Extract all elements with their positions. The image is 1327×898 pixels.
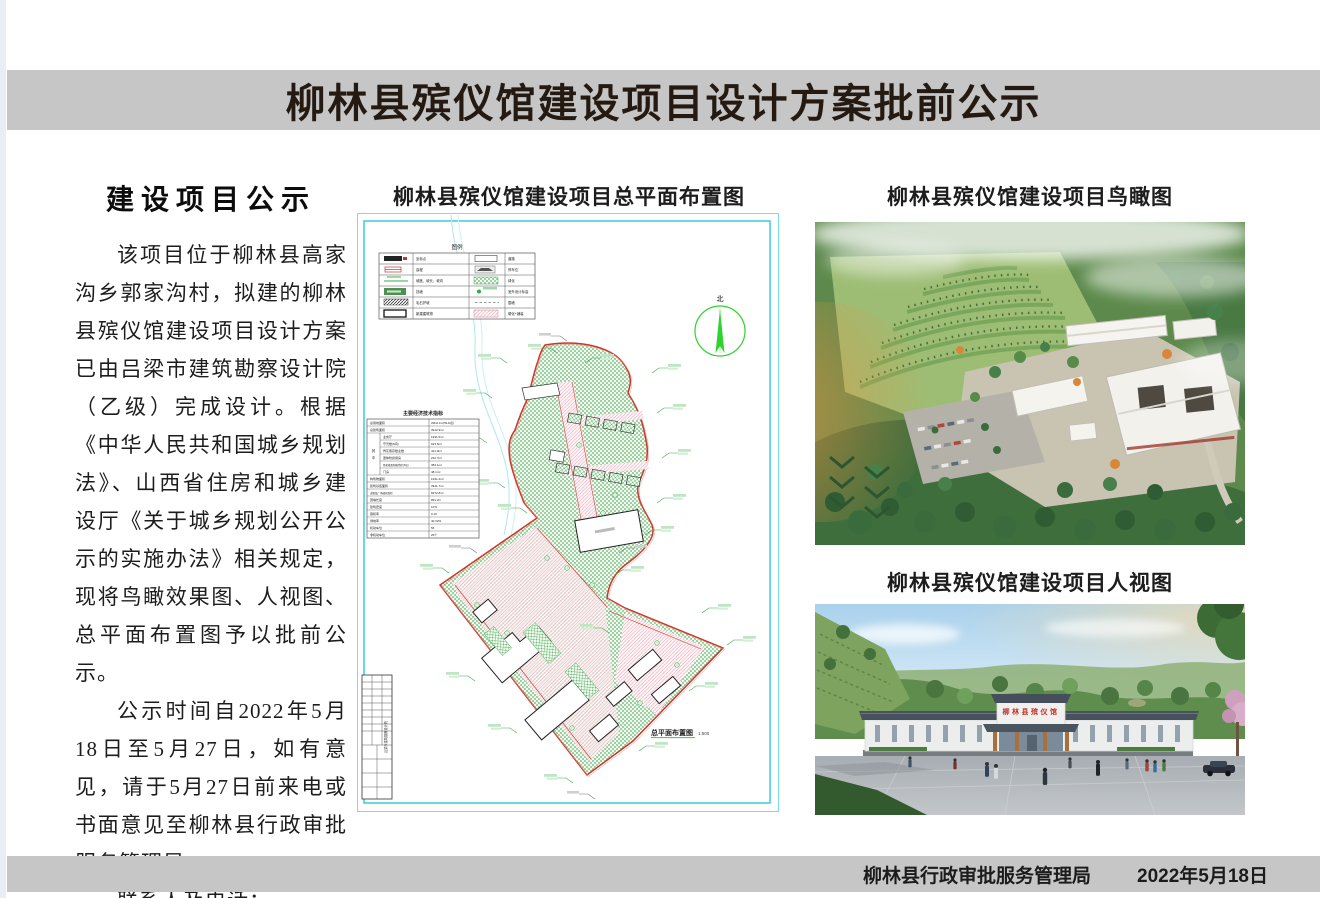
svg-text:新建建筑物: 新建建筑物 [416,311,434,316]
svg-text:623.6m²: 623.6m² [431,442,442,446]
svg-text:232.7m²: 232.7m² [431,456,442,460]
bottom-banner: 柳林县行政审批服务管理局 2022年5月18日 [7,856,1320,892]
svg-text:高程: 高程 [416,267,423,272]
page-title: 柳林县殡仪馆建设项目设计方案批前公示 [286,71,1042,129]
svg-text:1941.2m²: 1941.2m² [431,477,444,481]
svg-text:围墙长度: 围墙长度 [370,497,382,502]
svg-text:门房: 门房 [383,469,389,474]
svg-text:构筑物面积: 构筑物面积 [370,476,385,481]
svg-text:绿地率: 绿地率 [370,518,379,523]
svg-text:建筑基底面积: 建筑基底面积 [370,483,388,488]
site-plan-drawing: 图例 [357,213,779,812]
svg-text:56: 56 [431,526,435,530]
svg-text:8272.8m²: 8272.8m² [431,491,444,495]
svg-text:非机动车位: 非机动车位 [370,532,385,537]
page-edge-strip [0,0,6,898]
svg-text:总建筑面积: 总建筑面积 [370,427,385,432]
svg-text:机动车位: 机动车位 [370,525,382,530]
notice-heading: 建设项目公示 [75,178,347,218]
svg-text:384.1m²: 384.1m² [431,463,442,467]
svg-text:0.10: 0.10 [431,512,437,516]
site-plan-title: 柳林县殡仪馆建设项目总平面布置图 [358,181,780,211]
svg-text:坡度、坡长、坡向: 坡度、坡长、坡向 [416,278,444,283]
notice-paragraph-1: 该项目位于柳林县高家沟乡郭家沟村，拟建的柳林县殡仪馆建设项目设计方案已由吕梁市建… [75,236,347,692]
svg-text:421.9m²: 421.9m² [431,449,442,453]
top-banner: 柳林县殡仪馆建设项目设计方案批前公示 [7,70,1320,130]
svg-text:室外设计标高: 室外设计标高 [508,289,529,294]
person-view-title: 柳林县殡仪馆建设项目人视图 [815,567,1245,597]
svg-text:主要经济技术指标: 主要经济技术指标 [403,410,443,417]
svg-text:祭祀楼及附属用房(3层): 祭祀楼及附属用房(3层) [383,463,409,467]
building-sign: 柳林县殡仪馆 [1003,707,1060,716]
person-view-image: 柳林县殡仪馆 [815,604,1245,815]
svg-text:守灵楼(6间): 守灵楼(6间) [383,441,399,446]
svg-text:10%: 10% [431,505,437,509]
svg-text:坐标点: 坐标点 [416,256,427,261]
svg-text:道路: 道路 [508,256,515,261]
svg-text:建筑密度: 建筑密度 [370,504,382,509]
svg-text:40.32%: 40.32% [431,519,442,523]
svg-text:停车位: 停车位 [508,267,519,272]
svg-text:吕梁市建筑勘察设计院: 吕梁市建筑勘察设计院 [383,720,388,753]
footer-agency: 柳林县行政审批服务管理局 [863,861,1091,888]
svg-text:39611.1m²(59.42亩): 39611.1m²(59.42亩) [431,421,454,425]
aerial-view-image [815,222,1245,545]
indicators-table: 主要经济技术指标 其 中 总用地面积39611.1m²(59.42亩) 总建筑面… [367,410,479,538]
svg-text:道路及广场硬化面积: 道路及广场硬化面积 [370,491,393,495]
svg-text:总平面布置图: 总平面布置图 [651,728,693,737]
aerial-view-title: 柳林县殡仪馆建设项目鸟瞰图 [815,181,1245,211]
notice-column: 建设项目公示 该项目位于柳林县高家沟乡郭家沟村，拟建的柳林县殡仪馆建设项目设计方… [75,178,347,898]
svg-text:总用地面积: 总用地面积 [370,420,385,425]
svg-text:业务厅: 业务厅 [383,434,392,439]
notice-paragraph-2: 公示时间自2022年5月18日至5月27日，如有意见，请于5月27日前来电或书面… [75,692,347,882]
svg-text:26个: 26个 [431,533,437,537]
footer-date: 2022年5月18日 [1137,861,1268,888]
svg-text:骨灰寄存楼主楼: 骨灰寄存楼主楼 [383,448,404,453]
svg-text:891.2m: 891.2m [431,498,442,502]
svg-text:1:500: 1:500 [698,731,710,736]
svg-text:容积率: 容积率 [370,511,379,516]
svg-text:毛石护坡: 毛石护坡 [416,300,430,305]
svg-text:图例: 图例 [451,243,463,251]
plan-title-block: 吕梁市建筑勘察设计院 [362,675,392,799]
svg-text:硬化+铺装: 硬化+铺装 [508,311,524,316]
svg-text:3941.7m²: 3941.7m² [431,484,444,488]
svg-text:48.1m²: 48.1m² [431,470,440,474]
svg-text:北: 北 [717,295,724,303]
notice-poster: 柳林县殡仪馆建设项目设计方案批前公示 建设项目公示 该项目位于柳林县高家沟乡郭家… [0,0,1327,898]
svg-text:围墙: 围墙 [508,300,515,305]
svg-text:1931.5m²: 1931.5m² [431,435,444,439]
svg-text:遗体防腐用房: 遗体防腐用房 [383,455,401,460]
svg-text:3912.9m²: 3912.9m² [431,428,444,432]
svg-text:挡墙: 挡墙 [416,289,423,294]
svg-text:绿化: 绿化 [508,278,515,283]
plan-legend: 图例 [379,243,535,319]
